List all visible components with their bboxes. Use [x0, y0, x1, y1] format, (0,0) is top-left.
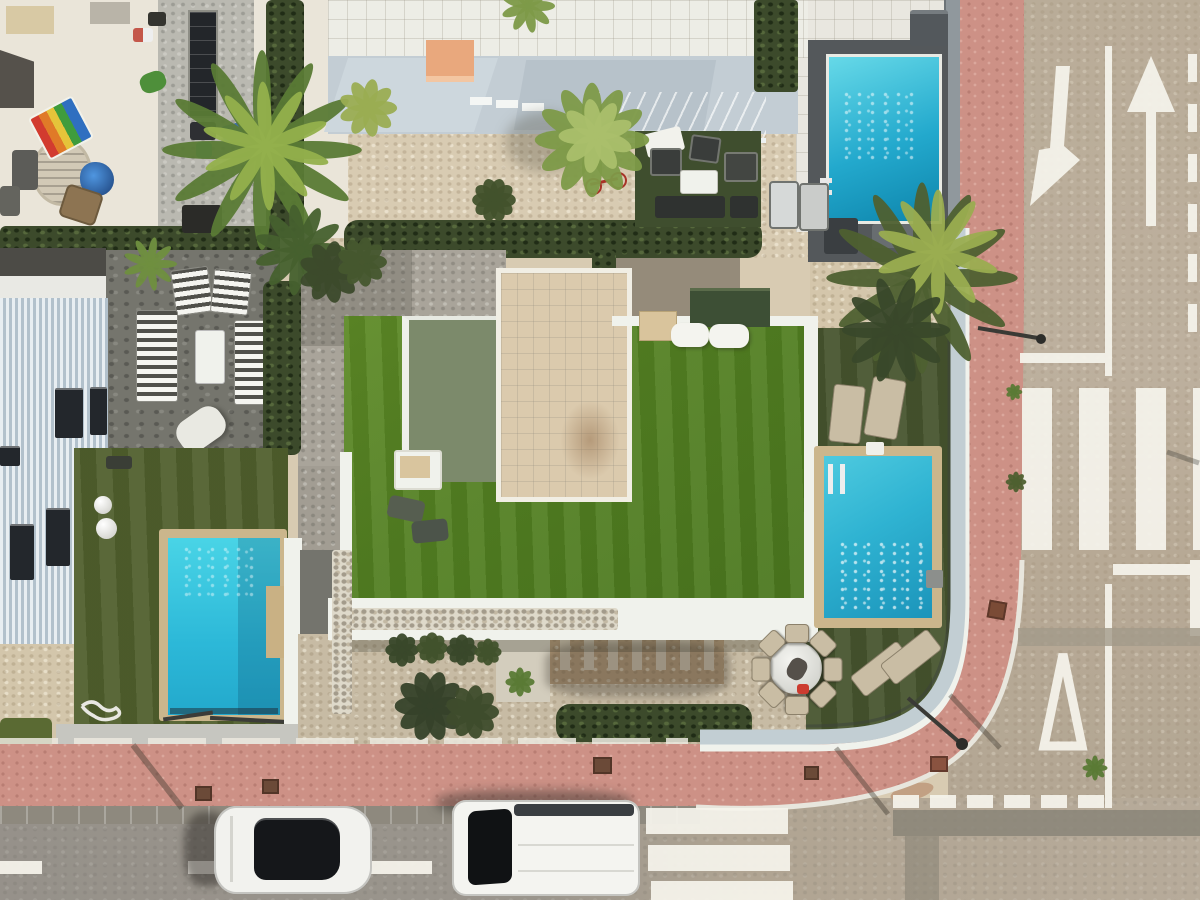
slatted-recliner — [210, 268, 252, 316]
window — [46, 508, 70, 566]
deck-furniture — [872, 224, 918, 248]
window — [90, 387, 107, 435]
pool-ladder-icon — [840, 464, 845, 494]
solar-panel-strip — [188, 10, 218, 118]
garden-item-dark — [106, 456, 132, 469]
drain-cover — [987, 600, 1008, 621]
car-glass-roof — [254, 818, 340, 880]
orange-accent-wall — [426, 40, 474, 82]
pool-ladder-icon — [828, 464, 833, 494]
hedgerow-bottom — [556, 704, 752, 742]
pool-bl-sparkle — [180, 545, 260, 600]
window — [55, 388, 83, 438]
window-slot — [496, 100, 518, 108]
grey-chair — [12, 150, 38, 190]
car-hood-line — [230, 816, 233, 882]
dark-sofa — [730, 196, 758, 218]
pebble-strip-south — [336, 608, 618, 630]
window — [10, 524, 34, 580]
hedge-left-vertical — [266, 0, 304, 238]
car-white-hatchback — [214, 806, 372, 894]
pool-east-sparkle — [836, 540, 926, 610]
window — [0, 446, 20, 466]
car-white-van — [452, 800, 640, 896]
white-lounger — [671, 323, 709, 347]
lawn-wall-west — [340, 452, 352, 556]
white-garden-sphere — [94, 496, 112, 514]
building-roof-white — [328, 0, 808, 58]
house-roof-dark — [0, 248, 106, 278]
pergola-roof-green — [690, 288, 770, 327]
bush-shadow — [505, 112, 585, 172]
pool-grey-box — [926, 570, 943, 588]
dark-seat — [650, 148, 682, 176]
patio-table — [195, 330, 225, 384]
pool-bench — [266, 586, 286, 658]
wall-shadow — [332, 640, 816, 652]
dark-mat — [182, 205, 222, 233]
van-roof-seam — [518, 870, 634, 872]
pebble-strip-west — [332, 550, 352, 714]
terrace-roof-grey-patch — [90, 2, 130, 24]
dark-object — [190, 122, 216, 140]
roof-stain — [560, 400, 620, 480]
window-slot — [470, 97, 492, 105]
van-roof-seam — [518, 844, 634, 846]
drain-cover — [593, 757, 612, 774]
coffee-table — [680, 170, 718, 194]
hedge-column — [263, 281, 301, 455]
terrace-roof-beige-patch — [6, 6, 54, 34]
window-slot — [522, 103, 544, 111]
white-garden-sphere — [96, 518, 117, 539]
grey-lounger — [769, 181, 799, 229]
dark-table — [148, 12, 166, 26]
drain-cover — [262, 779, 279, 794]
pool-skimmer — [866, 442, 884, 455]
drain-cover — [804, 766, 819, 780]
walkway-light — [56, 724, 306, 744]
sun-lounger — [828, 383, 866, 444]
grey-lounger — [799, 183, 829, 231]
road-right-texture — [948, 0, 1200, 900]
van-windshield — [468, 808, 512, 885]
red-white-item — [133, 28, 153, 42]
pool-shed-top — [400, 456, 430, 478]
slatted-recliner — [170, 266, 214, 317]
ac-unit — [910, 10, 948, 46]
grey-chair — [0, 186, 20, 216]
pool-seam — [170, 708, 278, 714]
drain-cover — [930, 756, 948, 772]
grass-patch-corner — [0, 718, 52, 748]
teal-item — [196, 142, 212, 158]
white-lounger — [709, 324, 749, 348]
van-window-strip — [514, 804, 634, 816]
red-pool-toy — [797, 684, 809, 694]
slatted-sun-lounger — [136, 310, 178, 402]
dark-seat — [724, 152, 758, 182]
aerial-photo-canvas — [0, 0, 1200, 900]
house-wall-white — [0, 276, 106, 300]
deck-furniture — [824, 218, 858, 254]
dark-sofa — [655, 196, 725, 218]
drain-cover — [195, 786, 212, 801]
dark-seat — [688, 134, 721, 164]
hedge-strip-top-right — [754, 0, 798, 92]
lawn-lounger-grey — [411, 518, 449, 544]
pool-top-right-sparkle — [840, 90, 920, 160]
